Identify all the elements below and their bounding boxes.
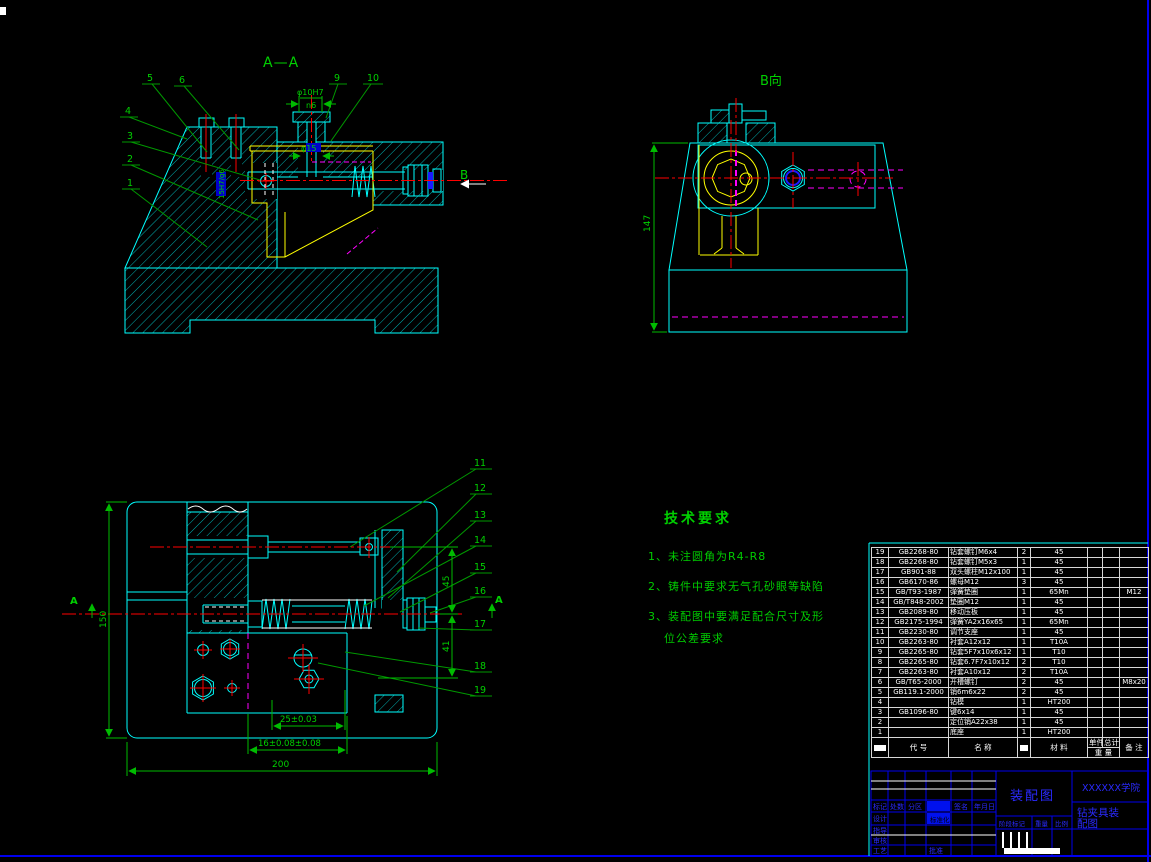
part-cell-remark (1120, 618, 1149, 628)
part-row: 1底座1HT200 (872, 728, 1149, 738)
part-cell-total (1103, 668, 1120, 678)
part-cell-total (1103, 598, 1120, 608)
part-cell-name: 钻套螺钉M6x4 (949, 548, 1018, 558)
tech-req-item: 位公差要求 (664, 630, 724, 646)
part-cell-total (1103, 688, 1120, 698)
part-cell-qty: 1 (1018, 728, 1031, 738)
tb-weight: 重量 (1035, 820, 1049, 828)
cad-drawing-canvas: A—A 5 6 9 10 4 3 2 1 (0, 0, 1151, 862)
tech-req-item: 3、装配图中要满足配合尺寸及形 (648, 608, 824, 624)
part-cell-name: 弹簧垫圈 (949, 588, 1018, 598)
part-cell-name: 弹簧YA2x16x65 (949, 618, 1018, 628)
part-cell-code: GB2263-80 (889, 638, 949, 648)
part-cell-mat: 45 (1031, 688, 1088, 698)
part-cell-remark (1120, 718, 1149, 728)
part-row: 3GB1096-80键6x14145 (872, 708, 1149, 718)
tb-org: XXXXXX学院 (1082, 782, 1141, 794)
part-cell-code: GB901-88 (889, 568, 949, 578)
plan-dimensions: 150 200 25±0.03 16±0.08±0.08 45 41 (99, 502, 458, 776)
part-cell-no: 16 (872, 578, 889, 588)
balloon-5: 5 (147, 73, 153, 84)
balloon-4: 4 (125, 106, 131, 117)
tb-check: 审核 (873, 836, 887, 845)
plan-balloons: 11 12 13 14 15 16 17 18 19 (474, 458, 486, 696)
tb-scale: 比例 (1055, 819, 1068, 828)
part-cell-mat: 45 (1031, 548, 1088, 558)
part-cell-mat: T10 (1031, 658, 1088, 668)
part-cell-no: 4 (872, 698, 889, 708)
part-cell-qty: 1 (1018, 568, 1031, 578)
svg-text:φ10H7: φ10H7 (297, 88, 324, 97)
part-cell-code: GB2268-80 (889, 558, 949, 568)
part-cell-unit (1088, 658, 1103, 668)
part-cell-name: 底座 (949, 728, 1018, 738)
footer-qty-highlight (1018, 738, 1031, 758)
tb-mark: 标记 (873, 802, 887, 811)
footer-remark: 备 注 (1120, 738, 1149, 758)
svg-text:25±0.03: 25±0.03 (280, 715, 317, 725)
part-cell-total (1103, 618, 1120, 628)
part-cell-mat: HT200 (1031, 698, 1088, 708)
part-row: 16GB6170-86螺母M12345 (872, 578, 1149, 588)
svg-text:A: A (495, 595, 503, 606)
part-cell-code: GB2175-1994 (889, 618, 949, 628)
part-row: 12GB2175-1994弹簧YA2x16x65165Mn (872, 618, 1149, 628)
svg-text:18: 18 (474, 661, 486, 672)
hidden-lines-b (672, 150, 904, 317)
part-cell-code: GB/T65-2000 (889, 678, 949, 688)
part-cell-mat: 65Mn (1031, 618, 1088, 628)
part-cell-unit (1088, 698, 1103, 708)
part-cell-no: 18 (872, 558, 889, 568)
part-cell-name: 钻套螺钉M5x3 (949, 558, 1018, 568)
part-row: 15GB/T93-1987弹簧垫圈165MnM12 (872, 588, 1149, 598)
part-cell-no: 17 (872, 568, 889, 578)
svg-text:15: 15 (474, 562, 486, 573)
part-cell-name: 钻套6.7F7x10x12 (949, 658, 1018, 668)
part-cell-unit (1088, 688, 1103, 698)
part-cell-qty: 1 (1018, 608, 1031, 618)
part-cell-name: 定位销A22x38 (949, 718, 1018, 728)
balloon-2: 2 (127, 154, 133, 165)
part-cell-qty: 1 (1018, 648, 1031, 658)
part-row: 9GB2265-80钻套5F7x10x6x121T10 (872, 648, 1149, 658)
footer-total: 总计 (1103, 738, 1120, 748)
part-cell-mat: 45 (1031, 678, 1088, 688)
part-cell-mat: 45 (1031, 628, 1088, 638)
part-row: 13GB2089-80移动压板145 (872, 608, 1149, 618)
view-title-aa: A—A (263, 55, 299, 71)
tech-req-item: 1、未注圆角为R4-R8 (648, 548, 766, 564)
part-row: 18GB2268-80钻套螺钉M5x3145 (872, 558, 1149, 568)
part-cell-unit (1088, 628, 1103, 638)
tech-req-title: 技术要求 (664, 508, 732, 528)
part-cell-mat: HT200 (1031, 728, 1088, 738)
svg-text:n6: n6 (306, 101, 316, 110)
part-cell-total (1103, 728, 1120, 738)
part-cell-qty: 2 (1018, 658, 1031, 668)
part-cell-total (1103, 658, 1120, 668)
mounting-holes (193, 639, 319, 700)
footer-name: 名 称 (949, 738, 1018, 758)
part-row: 14GB/T848-2002垫圈M12145 (872, 598, 1149, 608)
svg-text:14: 14 (474, 535, 486, 546)
parts-rows: 19GB2268-80钻套螺钉M6x424518GB2268-80钻套螺钉M5x… (872, 548, 1149, 738)
part-cell-name: 移动压板 (949, 608, 1018, 618)
part-cell-total (1103, 718, 1120, 728)
part-row: 19GB2268-80钻套螺钉M6x4245 (872, 548, 1149, 558)
svg-text:41: 41 (442, 641, 452, 652)
part-cell-total (1103, 568, 1120, 578)
part-cell-total (1103, 678, 1120, 688)
part-cell-code: GB/T93-1987 (889, 588, 949, 598)
part-cell-unit (1088, 548, 1103, 558)
part-cell-qty: 2 (1018, 548, 1031, 558)
part-cell-remark (1120, 558, 1149, 568)
part-cell-mat: T10 (1031, 648, 1088, 658)
part-cell-qty: 2 (1018, 688, 1031, 698)
part-cell-remark (1120, 598, 1149, 608)
tb-design: 设计 (873, 814, 887, 823)
part-cell-name: 衬套A12x12 (949, 638, 1018, 648)
tb-approve: 批准 (929, 846, 943, 855)
part-cell-total (1103, 698, 1120, 708)
section-marks: A A (70, 595, 503, 618)
part-cell-code: GB2263-80 (889, 668, 949, 678)
changed-file-cell (927, 801, 950, 811)
part-cell-total (1103, 628, 1120, 638)
part-cell-qty: 2 (1018, 668, 1031, 678)
part-cell-total (1103, 638, 1120, 648)
part-cell-remark (1120, 708, 1149, 718)
part-cell-qty: 2 (1018, 678, 1031, 688)
part-cell-no: 12 (872, 618, 889, 628)
parts-footer: 代 号 名 称 材 料 单件 总计 备 注 重 量 (872, 738, 1149, 758)
part-cell-unit (1088, 558, 1103, 568)
part-cell-name: 垫圈M12 (949, 598, 1018, 608)
part-cell-code: GB119.1-2000 (889, 688, 949, 698)
part-cell-no: 14 (872, 598, 889, 608)
balloon-10: 10 (367, 73, 379, 84)
tb-count: 处数 (890, 802, 904, 811)
part-cell-qty: 1 (1018, 618, 1031, 628)
part-cell-code: GB2268-80 (889, 548, 949, 558)
part-cell-unit (1088, 668, 1103, 678)
part-cell-unit (1088, 578, 1103, 588)
footer-unit: 单件 (1088, 738, 1103, 748)
part-cell-qty: 1 (1018, 698, 1031, 708)
part-cell-no: 15 (872, 588, 889, 598)
part-cell-remark (1120, 568, 1149, 578)
part-cell-mat: T10A (1031, 668, 1088, 678)
part-cell-unit (1088, 648, 1103, 658)
parts-list-table: 19GB2268-80钻套螺钉M6x424518GB2268-80钻套螺钉M5x… (871, 547, 1149, 758)
part-cell-qty: 1 (1018, 718, 1031, 728)
part-row: 8GB2265-80钻套6.7F7x10x122T10 (872, 658, 1149, 668)
svg-text:12: 12 (474, 483, 486, 494)
part-row: 6GB/T65-2000开槽螺钉245M8x20 (872, 678, 1149, 688)
part-cell-name: 销6m6x22 (949, 688, 1018, 698)
svg-text:150: 150 (99, 611, 109, 628)
svg-text:45: 45 (442, 576, 452, 587)
part-cell-name: 开槽螺钉 (949, 678, 1018, 688)
part-cell-code (889, 718, 949, 728)
dim-15h7g6: 15H7/g6 (216, 169, 226, 199)
part-cell-name: 键6x14 (949, 708, 1018, 718)
part-row: 5GB119.1-2000销6m6x22245 (872, 688, 1149, 698)
part-cell-unit (1088, 718, 1103, 728)
adjuster-knob (699, 145, 758, 255)
part-cell-unit (1088, 588, 1103, 598)
part-cell-mat: 45 (1031, 558, 1088, 568)
part-cell-name: 衬套A10x12 (949, 668, 1018, 678)
part-cell-code: GB1096-80 (889, 708, 949, 718)
tb-standard: 标准化 (930, 815, 950, 824)
part-cell-qty: 3 (1018, 578, 1031, 588)
view-b: B向 147 (643, 73, 907, 332)
part-cell-mat: T10A (1031, 638, 1088, 648)
svg-text:φ15: φ15 (301, 144, 316, 153)
part-cell-mat: 45 (1031, 708, 1088, 718)
tb-date: 年月日 (974, 802, 995, 811)
part-cell-no: 11 (872, 628, 889, 638)
part-cell-mat: 45 (1031, 578, 1088, 588)
part-cell-total (1103, 558, 1120, 568)
part-cell-remark: M8x20 (1120, 678, 1149, 688)
part-cell-remark (1120, 578, 1149, 588)
break-line (188, 506, 247, 512)
part-row: 7GB2263-80衬套A10x122T10A (872, 668, 1149, 678)
view-plan: A A 11 12 13 14 15 16 17 18 19 (62, 458, 503, 776)
part-row: 10GB2263-80衬套A12x121T10A (872, 638, 1149, 648)
part-cell-no: 19 (872, 548, 889, 558)
part-cell-unit (1088, 608, 1103, 618)
part-cell-no: 9 (872, 648, 889, 658)
balloon-6: 6 (179, 75, 185, 86)
view-title-b: B向 (760, 73, 782, 89)
part-row: 17GB901-88双头螺柱M12x100145 (872, 568, 1149, 578)
part-cell-code: GB/T848-2002 (889, 598, 949, 608)
svg-text:16±0.08±0.08: 16±0.08±0.08 (258, 739, 321, 749)
spring (352, 166, 375, 197)
part-cell-no: 6 (872, 678, 889, 688)
part-cell-name: 钻套5F7x10x6x12 (949, 648, 1018, 658)
part-cell-mat: 45 (1031, 598, 1088, 608)
part-cell-no: 5 (872, 688, 889, 698)
part-cell-no: 3 (872, 708, 889, 718)
part-cell-qty: 1 (1018, 558, 1031, 568)
svg-text:A: A (70, 596, 78, 607)
part-cell-code: GB6170-86 (889, 578, 949, 588)
part-cell-no: 13 (872, 608, 889, 618)
part-cell-qty: 1 (1018, 588, 1031, 598)
part-cell-remark (1120, 688, 1149, 698)
part-cell-remark (1120, 698, 1149, 708)
part-cell-no: 10 (872, 638, 889, 648)
part-cell-name: 钻模 (949, 698, 1018, 708)
tb-doc-line2: 配图 (1077, 818, 1098, 830)
title-block: 标记 处数 分区 签名 年月日 设计 指导 审核 工艺 批准 阶段标记 重量 比… (871, 771, 1148, 856)
part-cell-no: 8 (872, 658, 889, 668)
part-cell-total (1103, 548, 1120, 558)
part-cell-unit (1088, 618, 1103, 628)
part-cell-total (1103, 588, 1120, 598)
part-cell-code: GB2265-80 (889, 658, 949, 668)
balloon-1: 1 (127, 178, 133, 189)
part-cell-code (889, 698, 949, 708)
part-cell-unit (1088, 678, 1103, 688)
footer-material: 材 料 (1031, 738, 1088, 758)
balloon-3: 3 (127, 131, 133, 142)
part-cell-total (1103, 578, 1120, 588)
part-row: 2定位销A22x38145 (872, 718, 1149, 728)
part-cell-name: 螺母M12 (949, 578, 1018, 588)
plan-leaders (318, 469, 492, 696)
part-cell-name: 调节支座 (949, 628, 1018, 638)
dim-147: 147 (643, 143, 688, 332)
part-cell-total (1103, 708, 1120, 718)
part-cell-remark (1120, 648, 1149, 658)
part-cell-unit (1088, 708, 1103, 718)
part-row: 11GB2230-80调节支座145 (872, 628, 1149, 638)
svg-text:17: 17 (474, 619, 486, 630)
part-cell-code: GB2265-80 (889, 648, 949, 658)
svg-text:15H7/g6: 15H7/g6 (218, 169, 226, 199)
viewport-corner-mark (0, 7, 6, 15)
footer-code: 代 号 (889, 738, 949, 758)
part-cell-code: GB2089-80 (889, 608, 949, 618)
svg-text:147: 147 (643, 215, 653, 232)
svg-text:16: 16 (474, 586, 486, 597)
part-row: 4钻模1HT200 (872, 698, 1149, 708)
balloon-9: 9 (334, 73, 340, 84)
part-cell-unit (1088, 728, 1103, 738)
part-cell-no: 7 (872, 668, 889, 678)
part-cell-total (1103, 648, 1120, 658)
part-cell-unit (1088, 598, 1103, 608)
part-cell-qty: 1 (1018, 708, 1031, 718)
part-cell-mat: 45 (1031, 608, 1088, 618)
b-direction-label: B (460, 168, 468, 182)
part-cell-mat: 65Mn (1031, 588, 1088, 598)
tech-req-item: 2、铸件中要求无气孔砂眼等缺陷 (648, 578, 824, 594)
part-cell-mat: 45 (1031, 568, 1088, 578)
part-cell-unit (1088, 638, 1103, 648)
part-cell-code (889, 728, 949, 738)
tb-zone: 分区 (908, 802, 922, 811)
tb-drawing-title: 装配图 (1010, 789, 1055, 804)
part-cell-mat: 45 (1031, 718, 1088, 728)
part-cell-remark (1120, 658, 1149, 668)
part-cell-remark (1120, 628, 1149, 638)
part-cell-remark: M12 (1120, 588, 1149, 598)
part-cell-unit (1088, 568, 1103, 578)
part-cell-qty: 1 (1018, 598, 1031, 608)
part-cell-remark (1120, 638, 1149, 648)
part-cell-remark (1120, 548, 1149, 558)
footer-weight: 重 量 (1088, 748, 1120, 758)
svg-text:200: 200 (272, 760, 289, 770)
svg-text:11: 11 (474, 458, 486, 469)
part-cell-code: GB2230-80 (889, 628, 949, 638)
part-cell-total (1103, 608, 1120, 618)
tb-guide: 指导 (873, 826, 887, 835)
part-cell-remark (1120, 728, 1149, 738)
tb-stage: 阶段标记 (999, 819, 1026, 828)
part-cell-no: 1 (872, 728, 889, 738)
svg-text:19: 19 (474, 685, 486, 696)
pocket-outline (187, 633, 347, 713)
svg-text:13: 13 (474, 510, 486, 521)
part-cell-qty: 1 (1018, 628, 1031, 638)
tb-sign: 签名 (954, 802, 968, 811)
part-cell-remark (1120, 668, 1149, 678)
part-cell-no: 2 (872, 718, 889, 728)
view-section-aa: A—A 5 6 9 10 4 3 2 1 (120, 55, 510, 333)
footer-seq-highlight (872, 738, 889, 758)
part-cell-remark (1120, 608, 1149, 618)
part-cell-qty: 1 (1018, 638, 1031, 648)
part-cell-name: 双头螺柱M12x100 (949, 568, 1018, 578)
tb-process: 工艺 (873, 847, 887, 855)
